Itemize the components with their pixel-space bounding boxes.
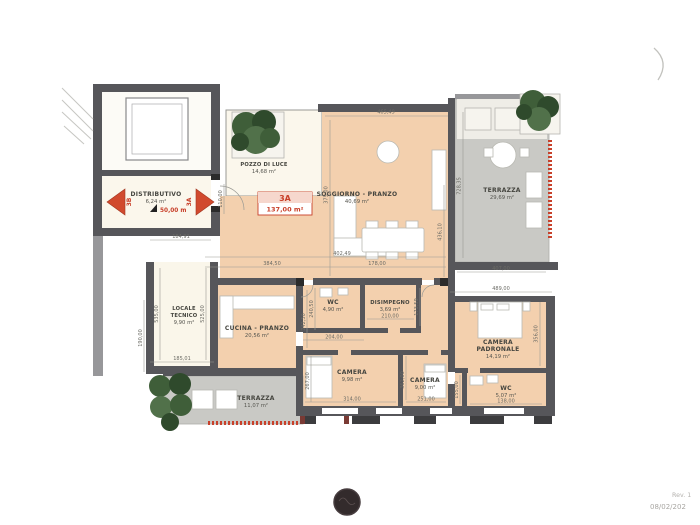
revision-text: Rev. 1 [672, 492, 691, 499]
dim-ter-left: 728,35 [457, 177, 463, 195]
area-terrazza-sud: 11,07 m² [244, 402, 268, 409]
unit-code: 3A [279, 194, 292, 203]
elevator [126, 98, 188, 160]
label-locale-1: LOCALE [172, 306, 196, 312]
area-terrazza-est: 29,69 m² [490, 194, 514, 201]
dim-wc2-bottom: 138,00 [497, 399, 515, 405]
dim-mid-4: 178,00 [368, 261, 386, 267]
approval-stamp [334, 489, 360, 515]
dim-mid-1: 184,91 [172, 234, 190, 240]
dim-cam1-left: 267,00 [305, 372, 311, 390]
dim-wc1-left-b: 242,50 [301, 313, 307, 331]
dim-lt-right: 525,00 [200, 305, 206, 323]
area-padronale: 14,19 m² [486, 353, 510, 360]
unit-arrow-right-label: 3A [186, 197, 193, 206]
tree-pozzo [231, 110, 280, 154]
label-terrazza-sud: TERRAZZA [237, 395, 275, 402]
label-wc1: WC [327, 299, 339, 306]
dim-dis-right: 173,59 [414, 298, 420, 316]
label-wc2: WC [500, 385, 512, 392]
date-text: 08/02/202 [650, 503, 686, 511]
label-locale-2: TECNICO [171, 313, 198, 319]
area-soggiorno: 40,69 m² [345, 198, 369, 205]
dim-wc1-bottom: 204,00 [325, 335, 343, 341]
unit-area: 137,00 m² [267, 206, 304, 214]
area-locale: 9,90 m² [174, 319, 195, 326]
label-camera2: CAMERA [410, 377, 440, 384]
dim-cam2-bottom: 251,00 [417, 397, 435, 403]
label-padronale-2: PADRONALE [476, 346, 519, 353]
area-wc1: 4,90 m² [323, 306, 344, 313]
unit-box: 3A 137,00 m² [258, 192, 312, 215]
label-terrazza-est: TERRAZZA [483, 187, 521, 194]
unit-arrow-left-label: 3B [126, 197, 133, 206]
dim-pad-right: 356,00 [534, 325, 540, 343]
dim-sog-top: 465,49 [377, 110, 395, 116]
dim-mid-3: 384,50 [263, 261, 281, 267]
elevation-value: 50,00 m [160, 208, 186, 214]
label-cucina: CUCINA - PRANZO [225, 325, 289, 332]
dim-door-right: 110,00 [218, 190, 224, 208]
label-disimpegno: DISIMPEGNO [370, 300, 410, 306]
label-pozzo: POZZO DI LUCE [240, 162, 288, 168]
dim-lt-gap: 190,00 [138, 329, 144, 347]
dim-pad-top: 489,00 [492, 286, 510, 292]
label-padronale-1: CAMERA [483, 339, 513, 346]
area-distributivo: 6,24 m² [146, 198, 167, 205]
area-cucina: 20,56 m² [245, 332, 269, 339]
dim-cam1-bottom: 314,00 [343, 397, 361, 403]
dim-wc1-left-a: 240,50 [309, 300, 315, 318]
area-pozzo: 14,68 m² [252, 168, 276, 175]
area-camera1: 9,98 m² [342, 376, 363, 383]
dim-mid-2: 402,49 [333, 251, 351, 257]
dim-wc2-left: 155,00 [454, 381, 460, 399]
padronale-bed [470, 302, 530, 338]
dim-cam2-left: 362,00 [400, 371, 406, 389]
dim-lt-left: 535,00 [154, 305, 160, 323]
label-distributivo: DISTRIBUTIVO [131, 191, 182, 198]
dim-sog-left: 375,00 [324, 186, 330, 204]
area-disimpegno: 3,69 m² [380, 306, 401, 313]
label-camera1: CAMERA [337, 369, 367, 376]
area-camera2: 9,00 m² [415, 384, 436, 391]
dim-dis-bottom: 210,00 [381, 314, 399, 320]
dim-lt-bottom: 185,01 [173, 356, 191, 362]
dim-sog-right: 436,10 [438, 223, 444, 241]
dim-ter-bottom: 407,00 [492, 266, 510, 272]
floor-plan: 3B 3A 50,00 m 3A 137,00 m² DISTRIBUTIVO … [0, 0, 700, 525]
